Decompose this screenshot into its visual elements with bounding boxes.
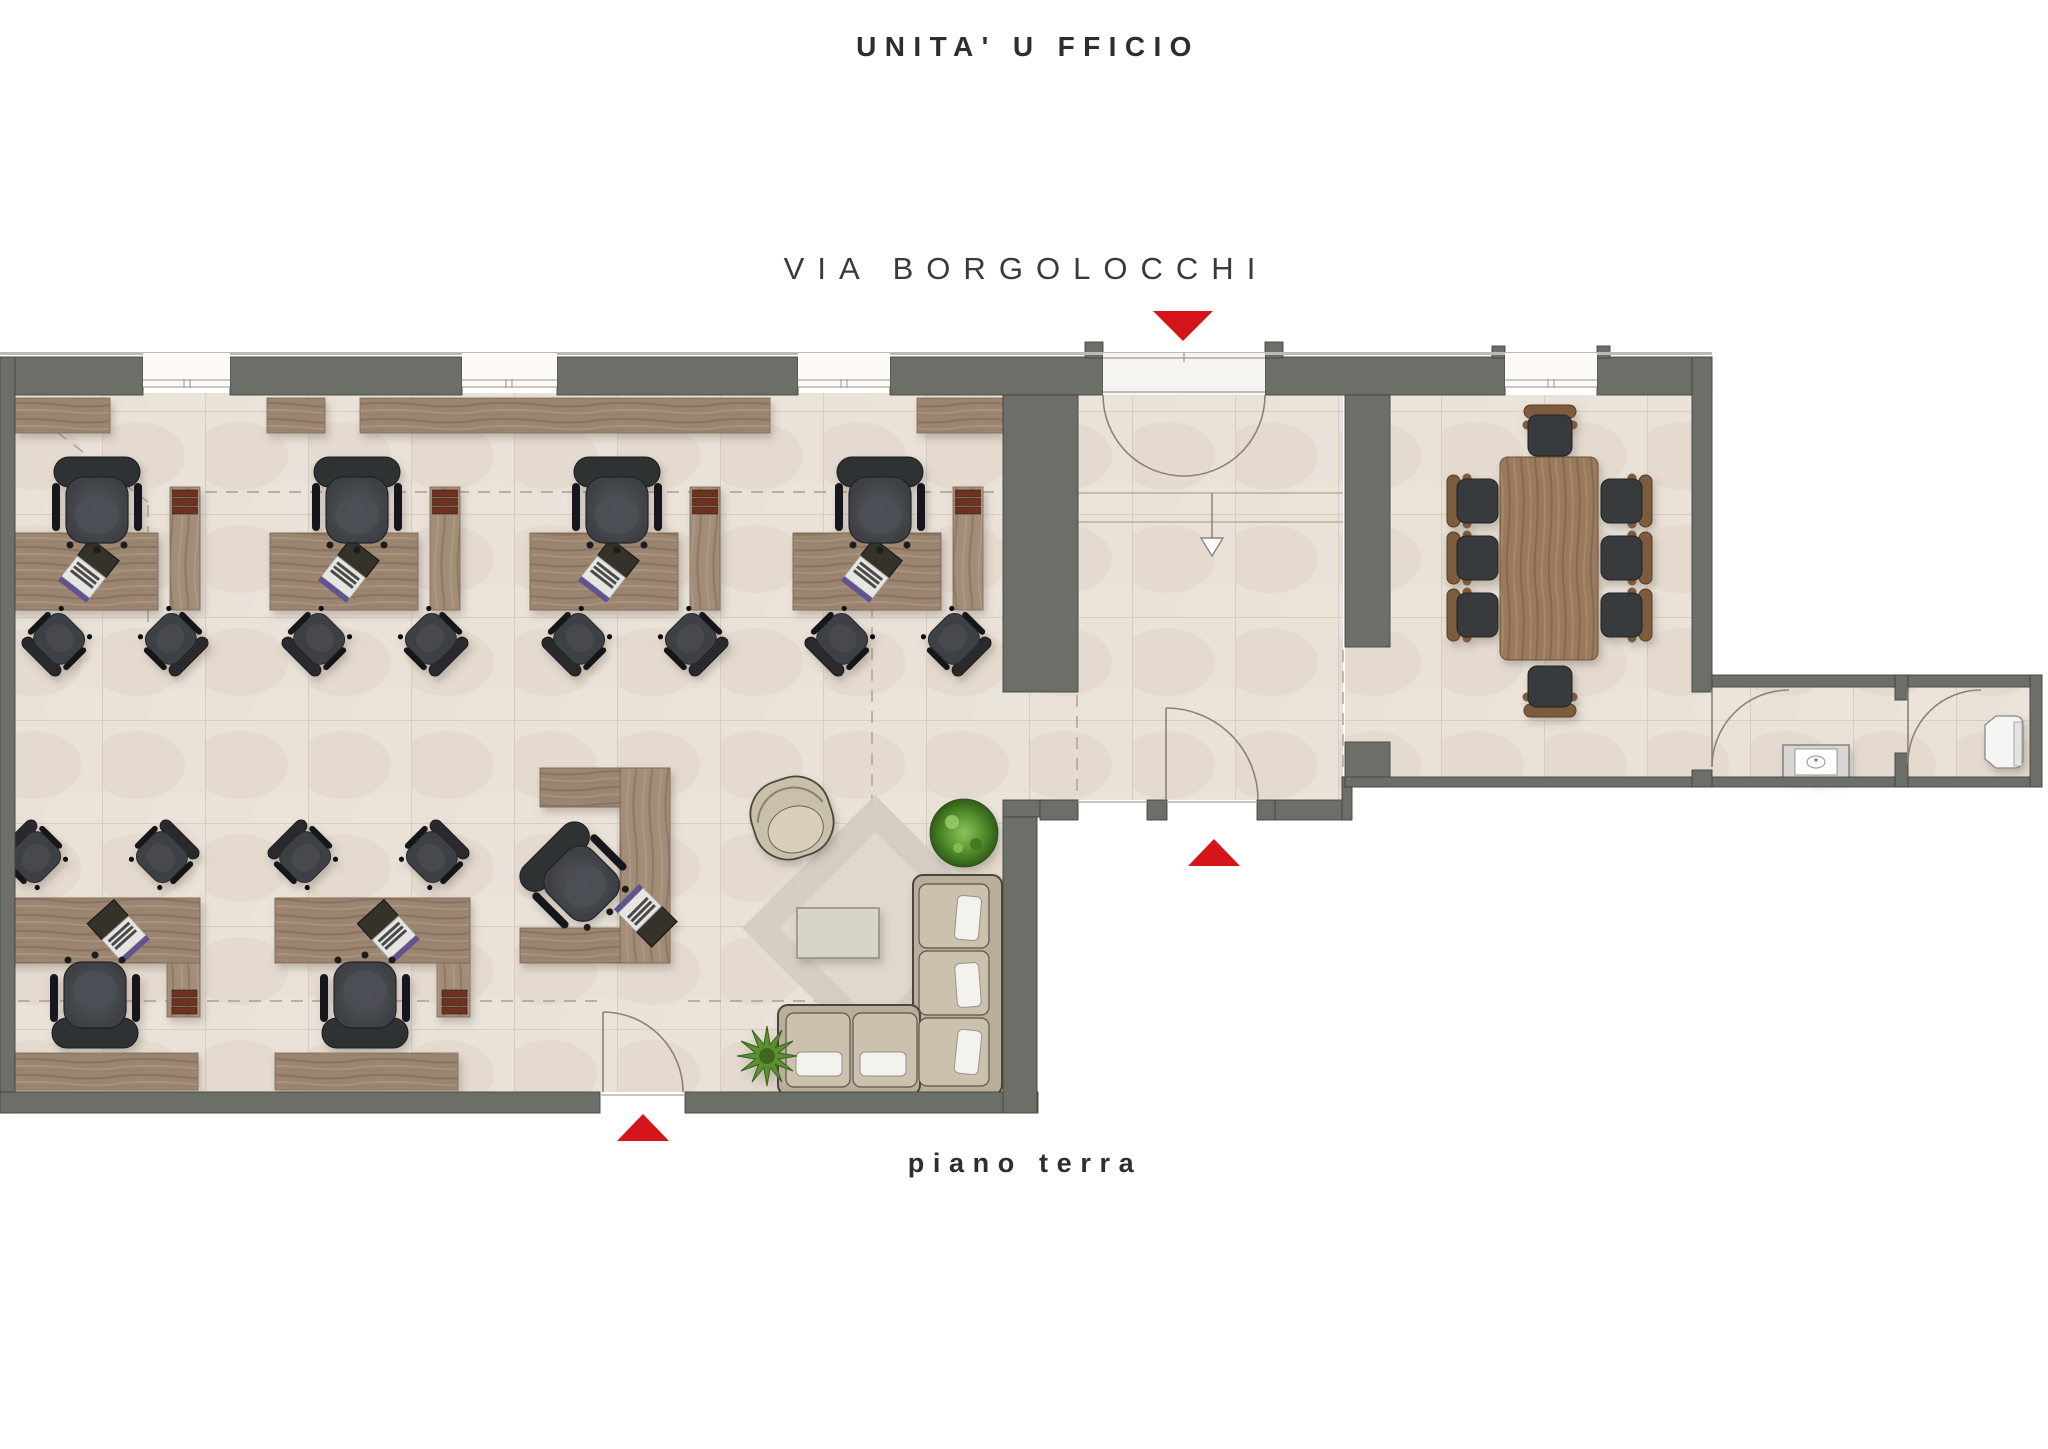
pillow: [954, 895, 982, 941]
conference-chair: [1447, 588, 1498, 643]
hall-meeting-passage-floor: [1345, 647, 1390, 742]
hall-exit-marker-icon: [1188, 839, 1240, 866]
floor-plan-drawing: [0, 0, 2048, 1449]
floor-plan-page: UNITA' U FFICIO VIA BORGOLOCCHI piano te…: [0, 0, 2048, 1449]
pillow: [954, 1029, 982, 1075]
pillow: [860, 1052, 906, 1076]
window: [462, 353, 557, 388]
plan-title: UNITA' U FFICIO: [856, 31, 1200, 63]
toilet: [1985, 716, 2023, 768]
conference-chair: [1601, 588, 1652, 643]
washroom-wc-passage-floor: [1895, 700, 1908, 753]
manager-desk: [520, 928, 620, 963]
street-label: VIA BORGOLOCCHI: [784, 251, 1269, 287]
office-exit-marker-icon: [617, 1114, 669, 1141]
floor-label: piano terra: [908, 1148, 1143, 1179]
window: [1505, 353, 1597, 388]
coffee-table: [797, 908, 879, 958]
window: [143, 353, 230, 388]
conference-table: [1500, 457, 1598, 660]
conference-chair: [1601, 531, 1652, 586]
pillow: [796, 1052, 842, 1076]
office-hall-passage-floor: [1003, 692, 1078, 800]
conference-chair: [1447, 531, 1498, 586]
conference-chair: [1601, 474, 1652, 529]
conference-chair: [1447, 474, 1498, 529]
window: [798, 353, 890, 388]
entrance-hall-floor: [1078, 395, 1343, 800]
conference-chair: [1523, 405, 1578, 456]
conference-chair: [1523, 666, 1578, 717]
potted-plant: [930, 799, 998, 867]
pillow: [954, 962, 981, 1008]
meeting-washroom-passage-floor: [1692, 692, 1712, 770]
street-entrance-marker-icon: [1153, 311, 1213, 341]
